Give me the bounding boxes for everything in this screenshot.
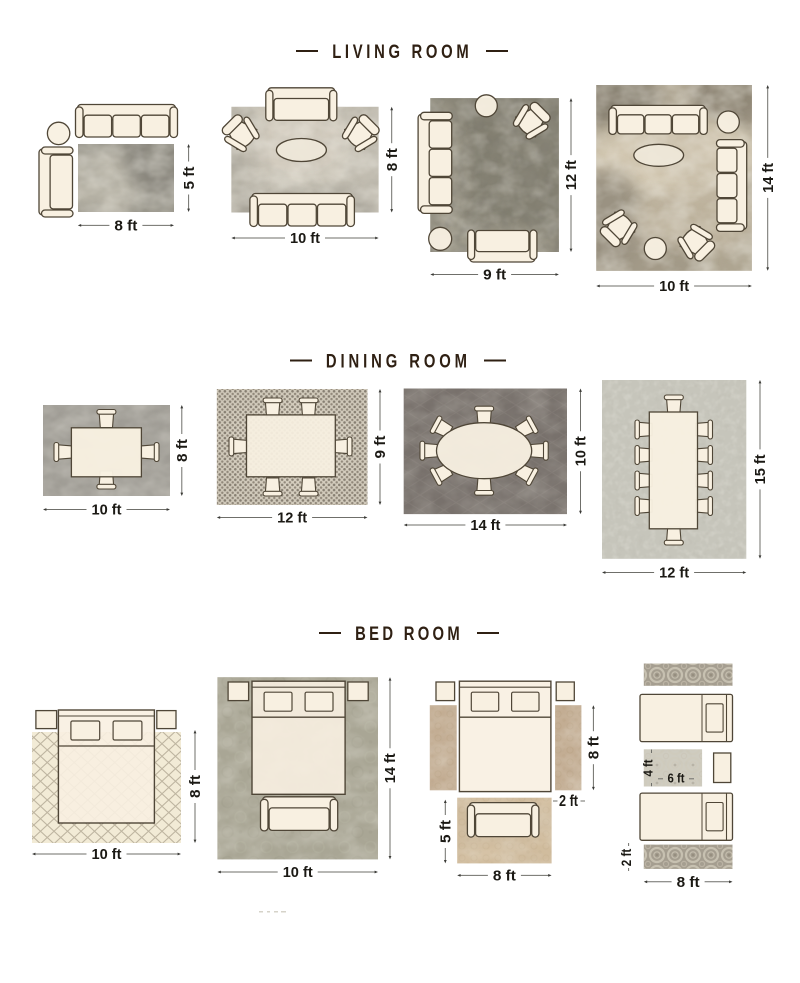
svg-text:14 ft: 14 ft <box>760 163 777 193</box>
svg-text:8 ft: 8 ft <box>114 218 137 235</box>
svg-text:5 ft: 5 ft <box>438 820 455 843</box>
svg-text:2 ft: 2 ft <box>619 848 634 866</box>
svg-text:LIVING ROOM: LIVING ROOM <box>332 41 472 62</box>
svg-text:12 ft: 12 ft <box>563 160 580 190</box>
svg-text:10 ft: 10 ft <box>92 846 122 863</box>
svg-text:12 ft: 12 ft <box>277 510 307 527</box>
svg-text:8 ft: 8 ft <box>586 736 603 759</box>
svg-text:14 ft: 14 ft <box>470 517 500 534</box>
svg-text:4 ft: 4 ft <box>641 759 656 777</box>
svg-text:9 ft: 9 ft <box>372 435 389 458</box>
svg-text:10 ft: 10 ft <box>283 864 313 881</box>
svg-text:14 ft: 14 ft <box>382 753 399 783</box>
svg-text:10 ft: 10 ft <box>573 436 590 466</box>
svg-text:12 ft: 12 ft <box>659 565 689 582</box>
svg-text:10 ft: 10 ft <box>92 502 122 519</box>
svg-text:5 ft: 5 ft <box>181 166 198 189</box>
svg-text:6 ft: 6 ft <box>668 772 686 786</box>
svg-text:9 ft: 9 ft <box>483 267 506 284</box>
svg-text:10 ft: 10 ft <box>290 230 320 247</box>
svg-text:10 ft: 10 ft <box>659 278 689 295</box>
svg-text:8 ft: 8 ft <box>493 868 516 885</box>
svg-text:15 ft: 15 ft <box>752 454 769 484</box>
svg-text:8 ft: 8 ft <box>384 148 401 171</box>
svg-text:DINING ROOM: DINING ROOM <box>326 351 470 372</box>
svg-text:8 ft: 8 ft <box>174 439 191 462</box>
svg-text:8 ft: 8 ft <box>677 874 700 891</box>
svg-text:BED ROOM: BED ROOM <box>355 623 463 644</box>
svg-text:2 ft: 2 ft <box>559 793 579 810</box>
svg-text:8 ft: 8 ft <box>187 775 204 798</box>
